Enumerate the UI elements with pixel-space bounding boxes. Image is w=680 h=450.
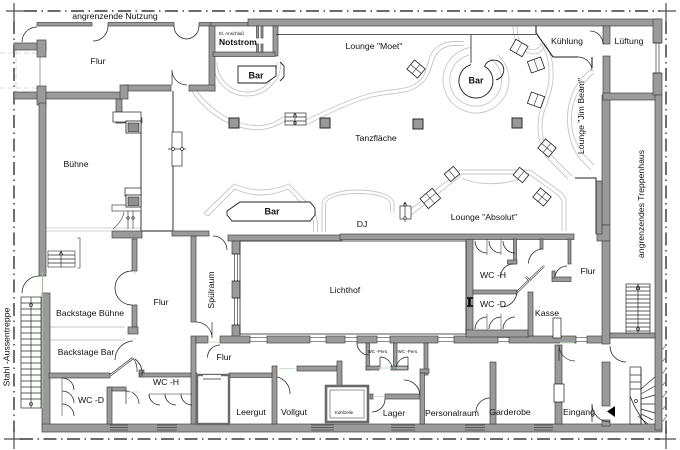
- svg-text:Lichthof: Lichthof: [330, 285, 361, 295]
- svg-text:Lager: Lager: [383, 408, 405, 418]
- svg-text:Flur: Flur: [154, 297, 169, 307]
- svg-text:Leergut: Leergut: [236, 407, 266, 417]
- svg-text:Bar: Bar: [468, 76, 484, 86]
- svg-text:DJ: DJ: [357, 219, 368, 229]
- svg-text:Eingang: Eingang: [563, 407, 595, 417]
- svg-text:El. Anschluß: El. Anschluß: [219, 31, 244, 36]
- svg-text:WC -D: WC -D: [480, 299, 506, 309]
- svg-text:Lüftung: Lüftung: [615, 36, 644, 46]
- svg-text:Garderobe: Garderobe: [489, 407, 531, 417]
- svg-text:Vollgut: Vollgut: [281, 407, 308, 417]
- svg-text:Bar: Bar: [248, 71, 264, 81]
- svg-text:angrenzende Nutzung: angrenzende Nutzung: [72, 11, 158, 21]
- svg-text:Spülraum: Spülraum: [206, 271, 216, 308]
- svg-text:Lounge "Moet": Lounge "Moet": [346, 41, 403, 51]
- svg-text:WC -Pers.: WC -Pers.: [398, 349, 419, 354]
- svg-text:WC -D: WC -D: [78, 395, 104, 405]
- svg-text:WC -Pers.: WC -Pers.: [368, 349, 389, 354]
- svg-text:Flur: Flur: [91, 56, 106, 66]
- svg-text:Flur: Flur: [217, 352, 232, 362]
- svg-text:Kühlzelle: Kühlzelle: [335, 410, 354, 415]
- svg-text:Tanzfläche: Tanzfläche: [355, 133, 397, 143]
- svg-text:Stahl -Aussentreppe: Stahl -Aussentreppe: [2, 307, 12, 386]
- svg-text:Backstage Bar: Backstage Bar: [58, 347, 115, 357]
- svg-text:Lounge "Absolut": Lounge "Absolut": [451, 212, 518, 222]
- svg-text:angrenzendes Treppenhaus: angrenzendes Treppenhaus: [636, 149, 646, 258]
- svg-text:Lounge "Jim Beam": Lounge "Jim Beam": [576, 78, 586, 154]
- svg-text:Backstage Bühne: Backstage Bühne: [56, 308, 124, 318]
- svg-text:Personalraum: Personalraum: [425, 408, 479, 418]
- svg-text:Kühlung: Kühlung: [551, 36, 583, 46]
- svg-text:Kasse: Kasse: [535, 308, 559, 318]
- svg-text:WC -H: WC -H: [480, 270, 506, 280]
- svg-text:Notstrom: Notstrom: [219, 37, 257, 47]
- svg-text:Bühne: Bühne: [63, 159, 88, 169]
- svg-text:Bar: Bar: [264, 207, 280, 217]
- svg-text:Flur: Flur: [581, 266, 596, 276]
- svg-text:WC -H: WC -H: [153, 377, 179, 387]
